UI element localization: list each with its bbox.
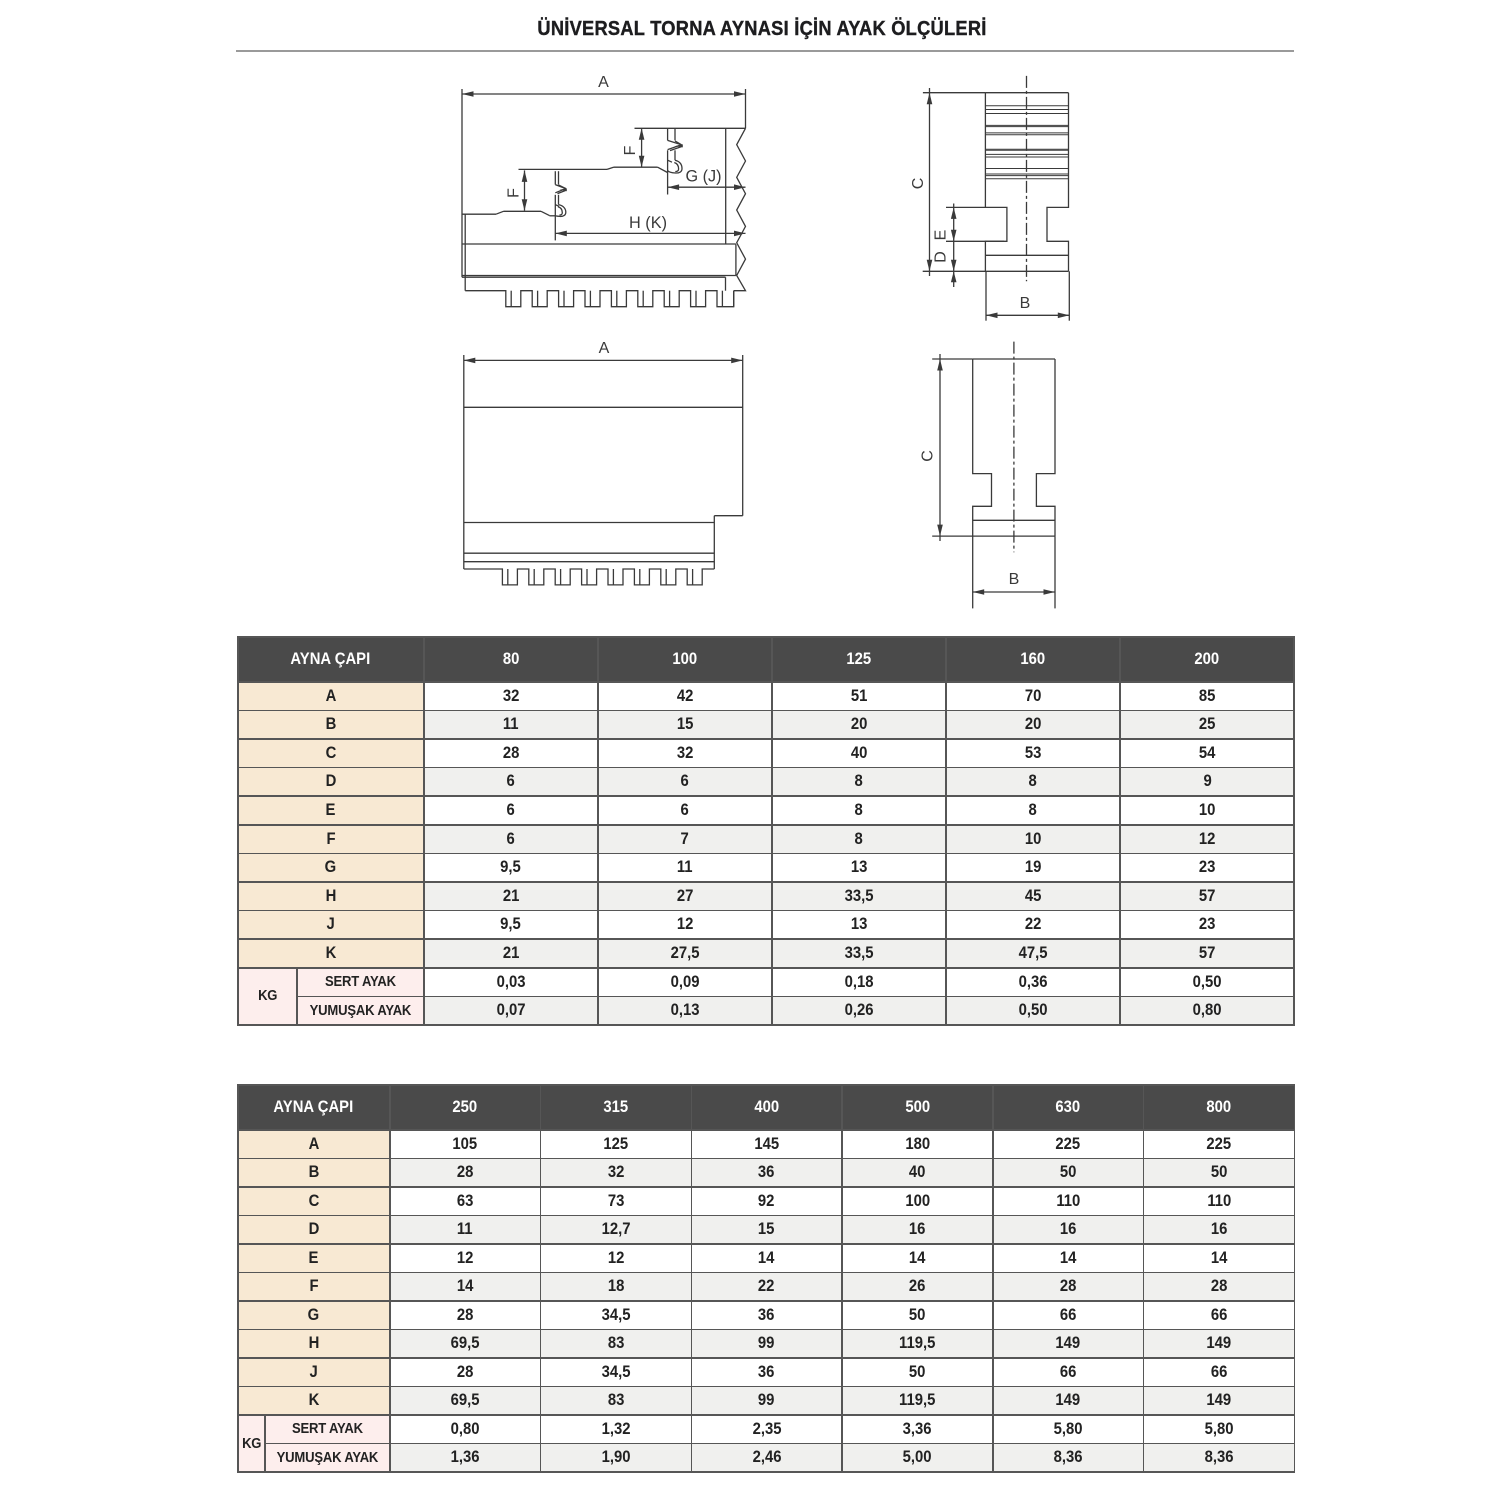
svg-text:A: A xyxy=(598,74,609,91)
svg-text:B: B xyxy=(1020,295,1031,312)
svg-text:F: F xyxy=(506,188,523,198)
svg-text:D: D xyxy=(933,251,950,263)
svg-text:F: F xyxy=(622,145,639,155)
svg-text:G (J): G (J) xyxy=(686,167,722,186)
svg-text:B: B xyxy=(1009,571,1020,588)
svg-text:C: C xyxy=(920,450,937,462)
svg-text:H (K): H (K) xyxy=(629,213,667,232)
svg-text:E: E xyxy=(933,230,950,241)
svg-text:C: C xyxy=(910,178,927,190)
svg-text:A: A xyxy=(599,340,610,357)
